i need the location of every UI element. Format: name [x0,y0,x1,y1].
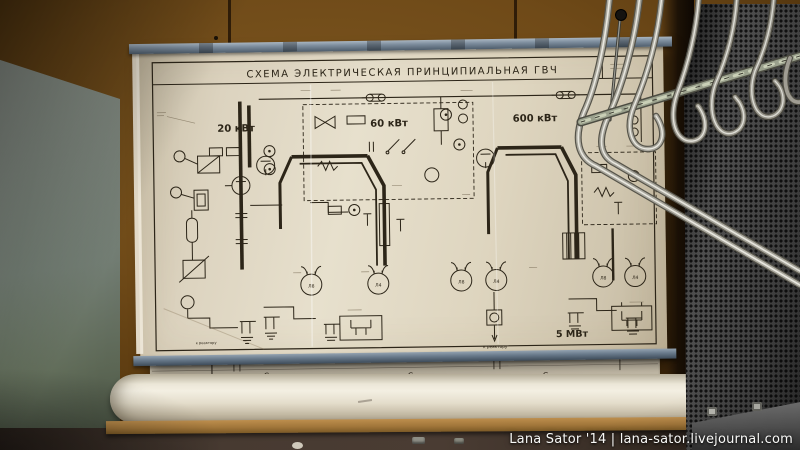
metal-clip [454,438,464,444]
tube-label: Л4 [375,283,382,289]
side-panel [0,52,120,444]
stage-label-600kw: 600 кВт [513,113,558,125]
tube-label: Л4 [632,275,639,281]
tube-label: Л4 [493,279,500,285]
panel-sheen [0,52,120,444]
poster-title: СХЕМА ЭЛЕКТРИЧЕСКАЯ ПРИНЦИПИАЛЬНАЯ ГВЧ [246,65,558,80]
mesh-shading [684,4,800,450]
schematic-drawing: СХЕМА ЭЛЕКТРИЧЕСКАЯ ПРИНЦИПИАЛЬНАЯ ГВЧ 2… [140,50,663,357]
output-power-label: 5 МВт [556,329,589,340]
stage-label-60kw: 60 кВт [370,118,408,130]
roll-smudge [358,399,372,403]
metal-clip [412,437,425,444]
paper-roll [110,374,698,424]
watermark: Lana Sator '14 | lana-sator.livejournal.… [509,432,793,447]
tube-label: Л8 [600,275,607,281]
table-debris [292,442,303,449]
schematic-poster: СХЕМА ЭЛЕКТРИЧЕСКАЯ ПРИНЦИПИАЛЬНАЯ ГВЧ 2… [136,41,667,363]
tube-label: Л8 [308,284,315,290]
screw-fitting [752,402,762,411]
screw-fitting [707,407,717,416]
reactor-note: к реактору [483,344,508,349]
stage-label-20kw: 20 кВт [217,123,255,135]
tube-label: Л8 [458,279,465,285]
wall-nail [214,36,218,40]
reactor-note: к реактору [196,341,218,345]
photo-scene: C₂ C₄ C₆ [0,0,800,450]
mesh-grille [684,4,800,450]
